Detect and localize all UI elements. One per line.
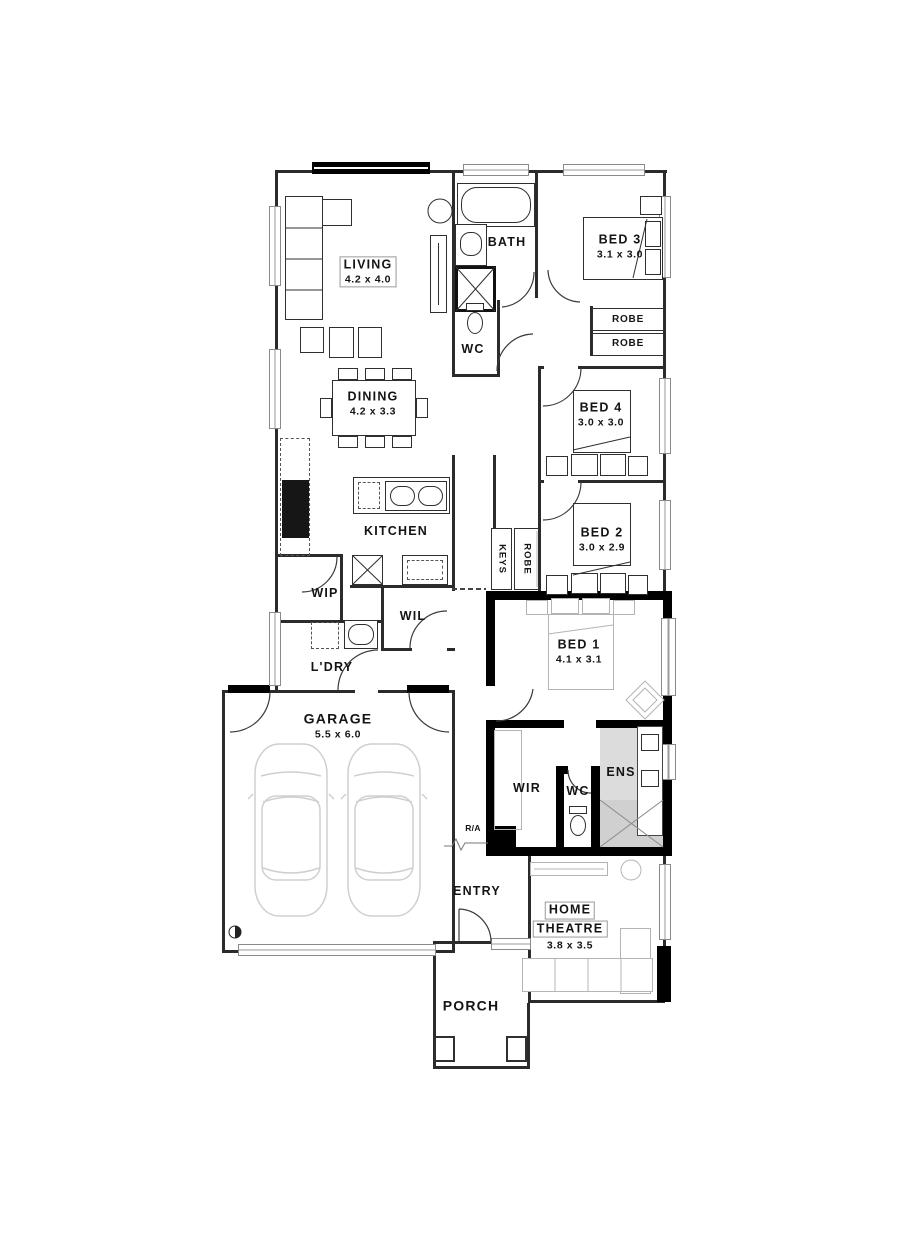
room-name: BED 2 xyxy=(579,525,625,541)
door-arc-wc xyxy=(497,334,533,371)
room-name: PORCH xyxy=(443,997,500,1015)
garage-corner-symbol xyxy=(229,926,241,938)
return-air-text: R/A xyxy=(465,823,481,833)
room-name: WIR xyxy=(513,781,541,797)
room-label-wil: WIL xyxy=(400,609,427,625)
bed1-corner-chair-inner xyxy=(633,688,657,712)
room-name: ENTRY xyxy=(453,884,501,900)
return-air-label: R/A xyxy=(465,823,481,833)
side-table-round xyxy=(428,199,452,223)
room-label-porch: PORCH xyxy=(443,997,500,1015)
room-name-line2: THEATRE xyxy=(533,920,608,938)
room-dims: 3.1 x 3.0 xyxy=(597,248,643,262)
room-dims: 4.2 x 3.3 xyxy=(348,405,399,419)
room-label-dining: DINING 4.2 x 3.3 xyxy=(348,389,399,418)
car xyxy=(341,744,427,916)
bed1-corner-chair xyxy=(626,681,664,719)
room-name: WC xyxy=(461,342,484,358)
robe-label: ROBE xyxy=(612,314,644,327)
room-name: DINING xyxy=(348,389,399,405)
door-arc-garage-ext xyxy=(230,692,270,732)
room-label-entry: ENTRY xyxy=(453,884,501,900)
room-label-home-theatre: HOME THEATRE 3.8 x 3.5 xyxy=(533,901,608,954)
room-name: LIVING xyxy=(344,257,393,273)
bed2-fold-line xyxy=(573,562,630,575)
robe-label: ROBE xyxy=(612,338,644,351)
room-name-line1: HOME xyxy=(545,902,595,920)
room-dims: 3.0 x 2.9 xyxy=(579,541,625,555)
door-arc-bath xyxy=(502,272,534,307)
room-dims: 5.5 x 6.0 xyxy=(304,728,373,742)
room-label-living: LIVING 4.2 x 4.0 xyxy=(340,256,397,287)
room-dims: 4.2 x 4.0 xyxy=(344,273,393,287)
room-name: L'DRY xyxy=(311,660,354,676)
overlay-layer xyxy=(0,0,901,1245)
ens-shower-x xyxy=(600,800,663,847)
door-arc-entry xyxy=(459,909,491,941)
door-arc-garage-int xyxy=(409,692,449,732)
room-name: GARAGE xyxy=(304,710,373,728)
room-name: WIP xyxy=(311,586,338,602)
room-label-wir: WIR xyxy=(513,781,541,797)
robe-text: ROBE xyxy=(612,314,644,327)
bed4-fold-line xyxy=(573,437,630,450)
door-arc-bed4 xyxy=(543,368,581,406)
room-name: WC xyxy=(566,784,589,800)
room-label-wc: WC xyxy=(461,342,484,358)
room-label-bed4: BED 4 3.0 x 3.0 xyxy=(578,400,624,429)
room-dims: 3.8 x 3.5 xyxy=(533,940,608,954)
room-label-bath: BATH xyxy=(488,235,527,251)
room-label-kitchen: KITCHEN xyxy=(364,524,428,540)
room-name: ENS xyxy=(606,765,635,781)
room-name: BATH xyxy=(488,235,527,251)
keys-label: KEYS xyxy=(497,544,508,574)
room-dims: 3.0 x 3.0 xyxy=(578,416,624,430)
room-name: BED 1 xyxy=(556,637,602,653)
room-label-bed2: BED 2 3.0 x 2.9 xyxy=(579,525,625,554)
garage-cars xyxy=(248,744,427,916)
room-label-bed1: BED 1 4.1 x 3.1 xyxy=(556,637,602,666)
room-name: KITCHEN xyxy=(364,524,428,540)
room-label-garage: GARAGE 5.5 x 6.0 xyxy=(304,710,373,741)
shower-x xyxy=(456,267,495,311)
room-name: WIL xyxy=(400,609,427,625)
door-arc-bed3 xyxy=(548,270,580,302)
theatre-side-table xyxy=(621,860,641,880)
room-dims: 4.1 x 3.1 xyxy=(556,653,602,667)
robe-text: ROBE xyxy=(612,338,644,351)
room-name: BED 4 xyxy=(578,400,624,416)
door-arc-bed1 xyxy=(496,689,533,721)
car xyxy=(248,744,334,916)
door-arc-bed2 xyxy=(543,482,581,520)
robe-bed2-label: ROBE xyxy=(522,543,533,574)
return-air-squiggle xyxy=(444,839,488,850)
appliance-x xyxy=(353,556,382,584)
room-label-ens: ENS xyxy=(606,765,635,781)
room-label-ldry: L'DRY xyxy=(311,660,354,676)
room-name: BED 3 xyxy=(597,232,643,248)
room-label-wip: WIP xyxy=(311,586,338,602)
room-label-ens-wc: WC xyxy=(566,784,589,800)
room-label-bed3: BED 3 3.1 x 3.0 xyxy=(597,232,643,261)
bed1-fold-line xyxy=(548,625,613,634)
floor-plan: LIVING 4.2 x 4.0 DINING 4.2 x 3.3 KITCHE… xyxy=(0,0,901,1245)
